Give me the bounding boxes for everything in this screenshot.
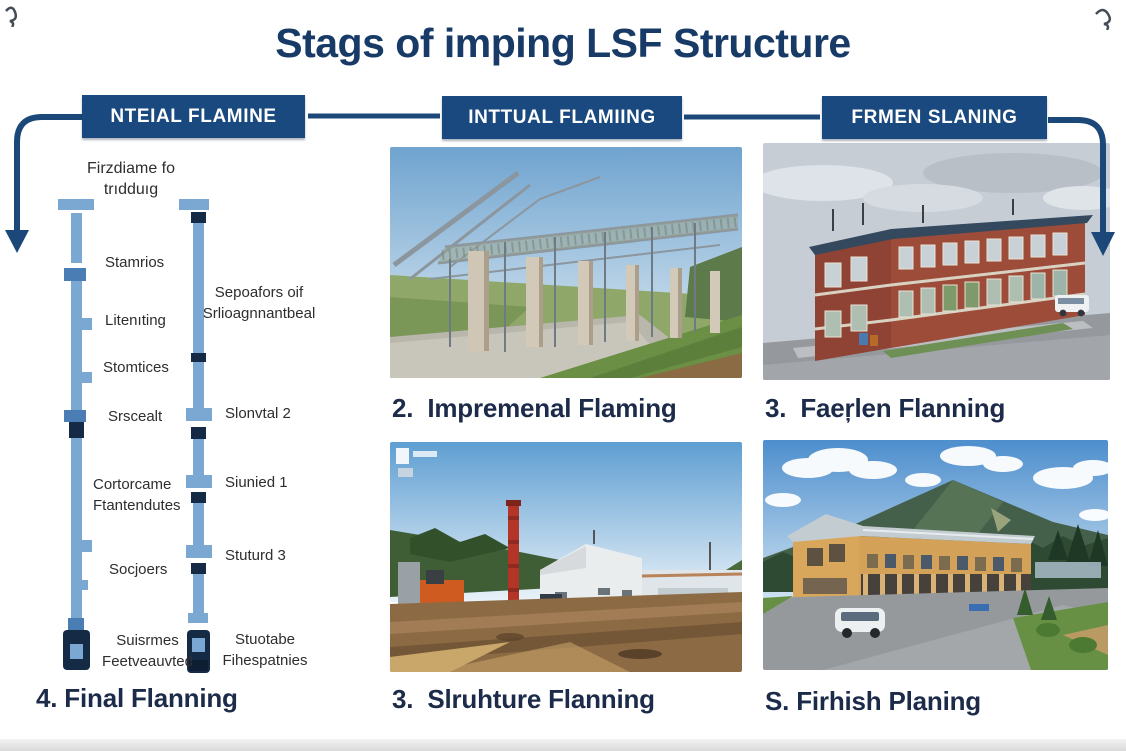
barrel — [859, 333, 868, 345]
timeline-label: Sepoafors oif Srlioagnnantbeal — [200, 282, 318, 324]
finished-building-scene — [763, 440, 1108, 670]
blue-pallet — [969, 604, 989, 611]
timeline-label-line: Sepoafors oif — [200, 282, 318, 303]
bar-node-dark — [191, 353, 206, 362]
steel-frame-scene — [390, 147, 742, 378]
photo-finished-timber-building — [763, 440, 1108, 670]
bar-segment — [71, 213, 82, 263]
bar-tick — [188, 613, 208, 623]
red-chimney — [506, 500, 521, 614]
timeline-label: Suisrmes Feetveauvted — [95, 630, 200, 672]
caption-stage-5: S. Firhish Planing — [765, 686, 981, 717]
diagram-top-label: Firzdiame fo trıdduıg — [86, 158, 176, 200]
timeline-label: Stuturd 3 — [225, 545, 286, 566]
bar-segment — [193, 503, 204, 545]
timeline-label: Stuotabe Fihespatnies — [212, 629, 318, 671]
stage-header-1: NTEIAL FLAMINE — [82, 95, 305, 138]
bar-segment — [71, 383, 82, 410]
timeline-label-line: Srlioagnnantbeal — [200, 303, 318, 324]
bar-node — [68, 618, 84, 630]
bar-segment — [193, 439, 204, 475]
diagram-top-label-line2: trıdduıg — [86, 179, 176, 200]
timeline-label-line: Suisrmes — [95, 630, 200, 651]
bar-segment — [71, 552, 82, 580]
timeline-label: Cortorcame Ftantendutes — [93, 474, 181, 516]
bar2-cap — [179, 199, 209, 210]
bar-tick — [71, 540, 92, 552]
stage-header-3: FRMEN SLANING — [822, 96, 1047, 139]
bar-node-dark — [191, 427, 206, 439]
caption-stage-3-top: 3. Faeŗlen Flanning — [765, 393, 1005, 424]
barrel — [870, 335, 878, 346]
bar-node — [64, 268, 86, 281]
background-structures — [1035, 562, 1101, 578]
bar-node — [64, 410, 86, 422]
timeline-label-line: Cortorcame — [93, 474, 181, 495]
timeline-label-line: Ftantendutes — [93, 495, 181, 516]
timeline-label-line: Fihespatnies — [212, 650, 318, 671]
bar-tick — [186, 545, 212, 558]
timeline-label: Litenıting — [105, 310, 166, 331]
bar1-cap — [58, 199, 94, 210]
anchor-bolt-inner — [70, 644, 83, 659]
bar-segment — [71, 330, 82, 372]
bar-tick — [71, 372, 92, 383]
bottom-strip — [0, 739, 1126, 751]
infographic-canvas: Stags of imping LSF Structure NTEIAL FLA… — [0, 0, 1126, 751]
page-title: Stags of imping LSF Structure — [0, 20, 1126, 67]
timeline-label: Siunied 1 — [225, 472, 288, 493]
caption-stage-2: 2. Impremenal Flaming — [392, 393, 677, 424]
photo-steel-frame-skeleton — [390, 147, 742, 378]
bar-tick — [186, 475, 212, 488]
timeline-label: Stamrios — [105, 252, 164, 273]
bar-node-dark — [191, 563, 206, 574]
timeline-label: Srscealt — [108, 406, 162, 427]
brick-building-scene — [763, 143, 1110, 380]
bar-node-dark — [69, 422, 84, 438]
photo-construction-site — [390, 442, 742, 672]
bar-segment — [71, 281, 82, 318]
timeline-label-line: Stuotabe — [212, 629, 318, 650]
bar-node-dark — [191, 492, 206, 503]
bar-segment — [71, 438, 82, 540]
photo-red-brick-building — [763, 143, 1110, 380]
bar-segment — [193, 362, 204, 408]
caption-stage-3-bottom: 3. Slruhture Flanning — [392, 684, 655, 715]
bar-segment — [193, 574, 204, 613]
caption-stage-4: 4. Final Flanning — [36, 683, 238, 714]
corner-artifact — [2, 3, 24, 27]
corner-artifact — [1092, 4, 1118, 30]
dirt-ground — [390, 592, 742, 672]
bar-segment — [71, 590, 82, 618]
bar-node-dark — [191, 212, 206, 223]
bar-tick — [71, 580, 88, 590]
timeline-label: Stomtices — [103, 357, 169, 378]
construction-scene — [390, 442, 742, 672]
timeline-label-line: Feetveauvted — [95, 651, 200, 672]
timeline-label: Socjoers — [109, 559, 167, 580]
bar-tick — [186, 408, 212, 421]
timeline-label: Slonvtal 2 — [225, 403, 291, 424]
diagram-top-label-line1: Firzdiame fo — [86, 158, 176, 179]
left-down-arrowhead-icon — [5, 230, 29, 253]
bar-tick — [71, 318, 92, 330]
stage-header-2: INTTUAL FLAMIING — [442, 96, 682, 139]
